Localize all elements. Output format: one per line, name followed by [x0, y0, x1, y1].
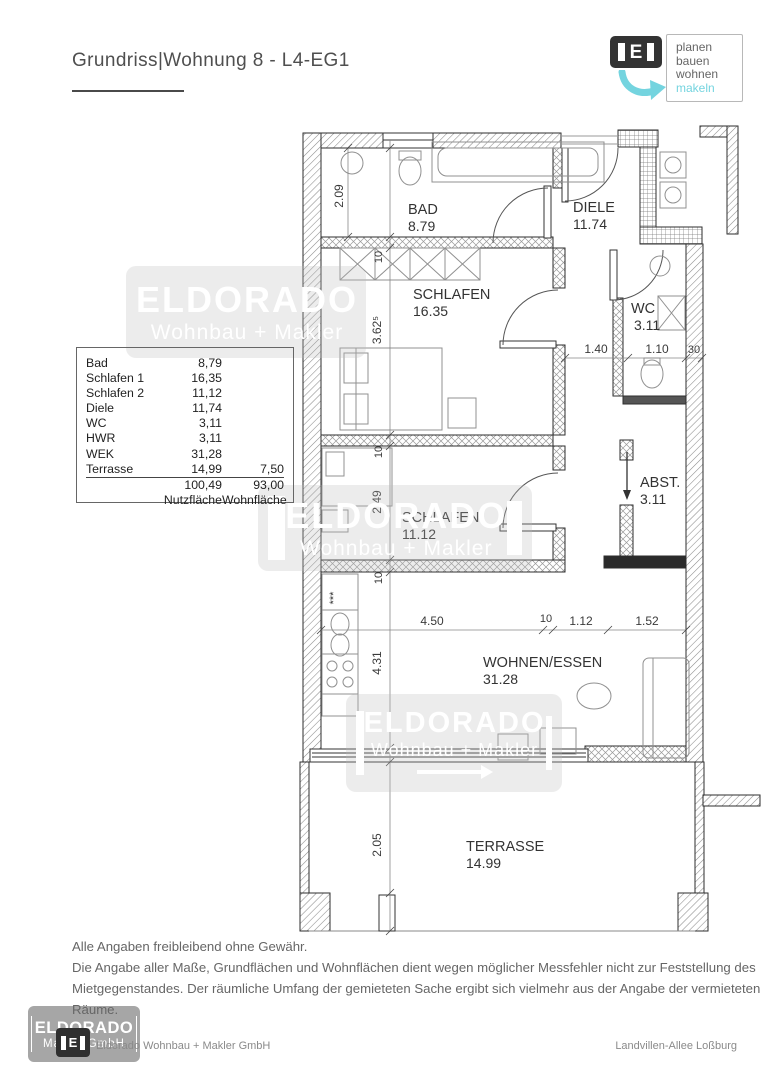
freezer-symbol: ***	[328, 591, 340, 605]
row-label: WEK	[86, 447, 162, 462]
logo-letter: E	[630, 43, 643, 62]
tagline-planen: planen	[676, 41, 742, 55]
table-footer-row: NutzflächeWohnfläche	[86, 493, 284, 508]
dim-schlafen2-height: 2.49	[370, 490, 384, 514]
dim-wc-width: 1.10	[645, 342, 669, 356]
room-label-wohnen: WOHNEN/ESSEN	[483, 655, 602, 671]
row-nutzflaeche: 3,11	[162, 416, 222, 431]
page: 2.09 10 3.62⁵ 10 2.49 10 4.31 2.05 1.40 …	[0, 0, 764, 1080]
row-wohnflaeche	[222, 386, 284, 401]
row-label: Bad	[86, 356, 162, 371]
dim-wall-right: 30	[688, 344, 700, 356]
tagline-bauen: bauen	[676, 55, 742, 69]
row-wohnflaeche	[222, 401, 284, 416]
row-label: HWR	[86, 431, 162, 446]
dim-wohnen-width: 4.50	[420, 614, 444, 628]
room-label-schlafen2: SCHLAFEN	[402, 510, 479, 526]
row-nutzflaeche: 11,74	[162, 401, 222, 416]
row-label: Schlafen 2	[86, 386, 162, 401]
area-table: Bad8,79 Schlafen 116,35 Schlafen 211,12 …	[76, 347, 294, 503]
disclaimer-line: Die Angabe aller Maße, Grundflächen und …	[72, 957, 760, 978]
room-area-schlafen1: 16.35	[413, 303, 448, 319]
disclaimer-line: Alle Angaben freibleibend ohne Gewähr.	[72, 936, 760, 957]
row-wohnflaeche: 7,50	[222, 462, 284, 477]
room-label-diele: DIELE	[573, 200, 615, 216]
swoosh-arrow-icon	[616, 70, 668, 102]
dim-flur-width: 1.40	[584, 342, 608, 356]
disclaimer-line: Räume.	[72, 999, 760, 1020]
dim-abst-width2: 1.52	[635, 614, 659, 628]
title-underline	[72, 90, 184, 92]
room-label-terrasse: TERRASSE	[466, 839, 544, 855]
logo-tagline: planen bauen wohnen makeln	[666, 34, 743, 102]
page-footer: Eldorado Wohnbau + Makler GmbH Landville…	[96, 1040, 737, 1052]
total-wohnflaeche: 93,00	[222, 478, 284, 493]
dim-terrasse-height: 2.05	[370, 833, 384, 857]
row-label: Schlafen 1	[86, 371, 162, 386]
room-area-abst: 3.11	[640, 491, 666, 507]
room-label-wc: WC	[631, 301, 655, 317]
room-label-schlafen1: SCHLAFEN	[413, 287, 490, 303]
windows	[309, 133, 695, 931]
floor-plan: 2.09 10 3.62⁵ 10 2.49 10 4.31 2.05 1.40 …	[0, 0, 764, 1080]
footer-company: Eldorado Wohnbau + Makler GmbH	[96, 1040, 270, 1052]
room-area-diele: 11.74	[573, 216, 607, 232]
row-nutzflaeche: 8,79	[162, 356, 222, 371]
footer-logo-icon: E	[56, 1028, 90, 1057]
logo-bar	[80, 1036, 85, 1050]
dim-wall-d: 10	[540, 613, 552, 625]
row-wohnflaeche	[222, 416, 284, 431]
disclaimer: Alle Angaben freibleibend ohne Gewähr. D…	[72, 936, 760, 1020]
dim-wohnen-height: 4.31	[370, 651, 384, 675]
room-labels: BAD 8.79 DIELE 11.74 SCHLAFEN 16.35 WC 3…	[402, 200, 680, 871]
table-row: WC3,11	[86, 416, 284, 431]
row-label: Terrasse	[86, 462, 162, 477]
row-nutzflaeche: 14,99	[162, 462, 222, 477]
col-footer-nutzflaeche: Nutzfläche	[162, 493, 222, 508]
footer-location: Landvillen-Allee Loßburg	[615, 1040, 737, 1052]
tagline-wohnen: wohnen	[676, 68, 742, 82]
room-label-abst: ABST.	[640, 475, 680, 491]
table-row: Terrasse14,997,50	[86, 462, 284, 477]
row-nutzflaeche: 3,11	[162, 431, 222, 446]
logo-bar	[618, 43, 625, 61]
room-area-terrasse: 14.99	[466, 855, 501, 871]
logo-letter: E	[69, 1036, 78, 1049]
dim-bad-height: 2.09	[332, 184, 346, 208]
tagline-makeln: makeln	[676, 82, 742, 96]
row-label: Diele	[86, 401, 162, 416]
company-logo: E planen bauen wohnen makeln	[608, 34, 748, 104]
row-nutzflaeche: 11,12	[162, 386, 222, 401]
logo-bar	[61, 1036, 66, 1050]
col-footer-wohnflaeche: Wohnfläche	[222, 493, 284, 508]
logo-bar	[647, 43, 654, 61]
row-nutzflaeche: 16,35	[162, 371, 222, 386]
dim-abst-width: 1.12	[569, 614, 593, 628]
table-row: WEK31,28	[86, 447, 284, 462]
table-total-row: 100,4993,00	[86, 477, 284, 493]
table-row: Bad8,79	[86, 356, 284, 371]
dim-wall-a: 10	[373, 251, 385, 263]
row-label: WC	[86, 416, 162, 431]
wardrobe-icons	[340, 248, 480, 280]
row-wohnflaeche	[222, 371, 284, 386]
room-label-bad: BAD	[408, 202, 438, 218]
room-area-wc: 3.11	[634, 317, 660, 333]
logo-mark-icon: E	[610, 36, 662, 68]
dim-wall-c: 10	[373, 572, 385, 584]
dim-wall-b: 10	[373, 446, 385, 458]
row-wohnflaeche	[222, 447, 284, 462]
room-area-schlafen2: 11.12	[402, 526, 436, 542]
total-nutzflaeche: 100,49	[162, 478, 222, 493]
table-row: Diele11,74	[86, 401, 284, 416]
row-wohnflaeche	[222, 356, 284, 371]
row-nutzflaeche: 31,28	[162, 447, 222, 462]
room-area-bad: 8.79	[408, 218, 435, 234]
room-area-wohnen: 31.28	[483, 671, 518, 687]
dim-schlafen1-height: 3.62⁵	[370, 316, 384, 344]
page-title: Grundriss|Wohnung 8 - L4-EG1	[72, 50, 350, 72]
table-row: HWR3,11	[86, 431, 284, 446]
disclaimer-line: Mietgegenstandes. Der räumliche Umfang d…	[72, 978, 760, 999]
row-wohnflaeche	[222, 431, 284, 446]
table-row: Schlafen 211,12	[86, 386, 284, 401]
table-row: Schlafen 116,35	[86, 371, 284, 386]
